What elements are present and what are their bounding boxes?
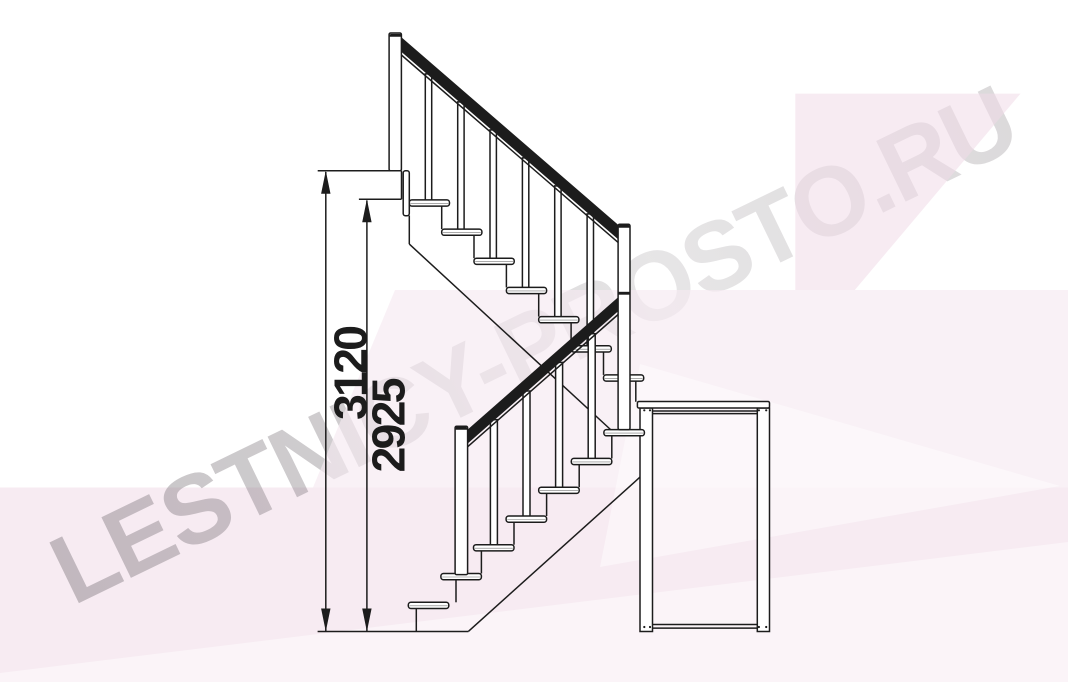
svg-text:2925: 2925 xyxy=(363,378,415,472)
